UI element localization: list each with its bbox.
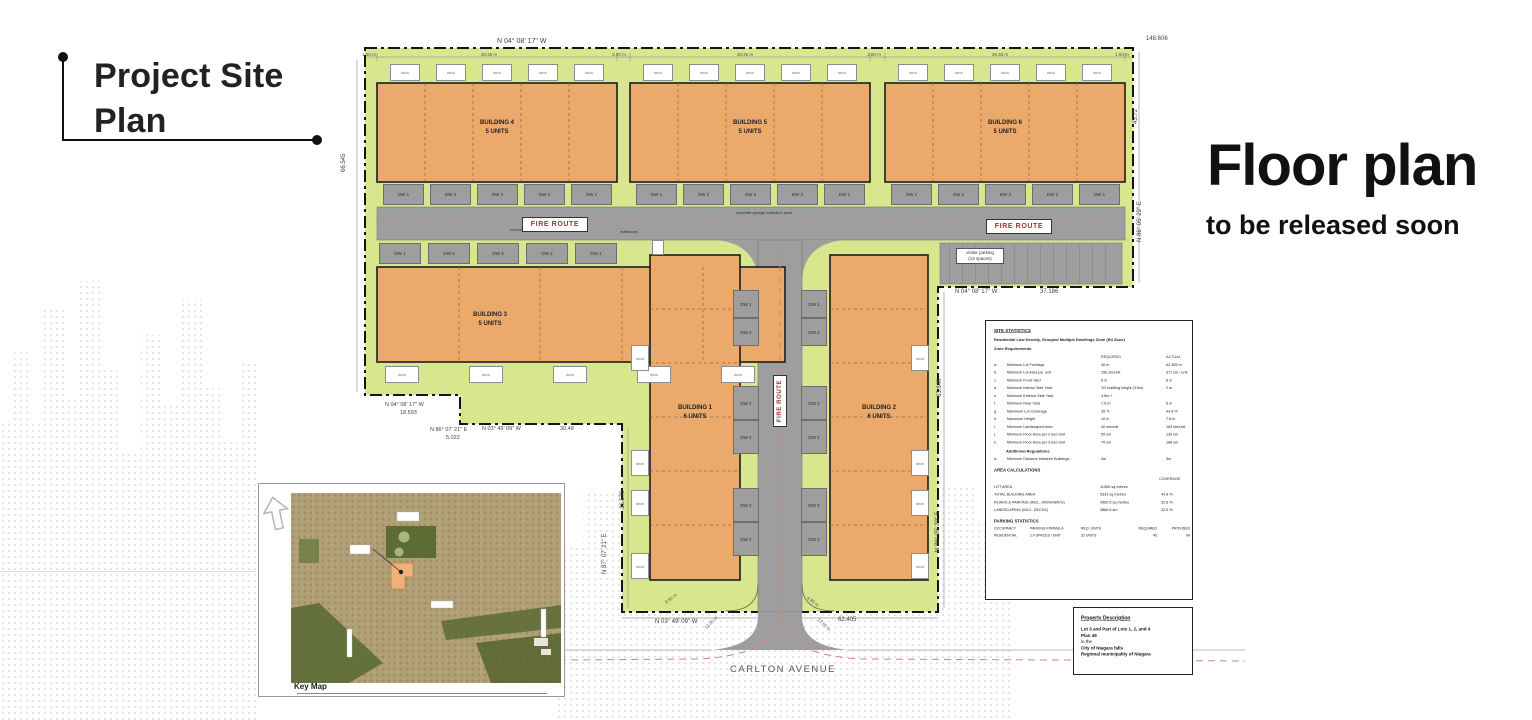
- building-6-footprint: [885, 83, 1125, 182]
- stats-row-actual: 2 m: [1166, 386, 1203, 391]
- stats-row-letter: a.: [994, 457, 1006, 462]
- stats-row-required: 4.5m +: [1101, 393, 1165, 398]
- site-marker-dot: [399, 570, 403, 574]
- parking-col: PROVIDED: [1158, 527, 1190, 531]
- stats-row: j. Minimum Floor Area per 2 bed Unit 55 …: [994, 432, 1186, 437]
- area-row-coverage: 32.8 %: [1161, 500, 1202, 505]
- site-plan-page: Project Site Plan Floor plan to be relea…: [0, 0, 1532, 720]
- parking-data-row: RESIDENTIAL 1.4 SPACES / UNIT 32 UNITS 4…: [994, 534, 1186, 538]
- stats-row-required: 250 sm/unit: [1101, 370, 1165, 375]
- stats-row-actual: 62.405 m: [1166, 362, 1203, 367]
- property-description-panel: Property Description Lot 3 and Part of L…: [1073, 607, 1193, 675]
- stats-area-row: TOTAL BUILDING AREA 5333 sq metres 44.8 …: [994, 492, 1186, 497]
- stats-row: i. Minimum Landscaped Area 40 sm/unit 16…: [994, 424, 1186, 429]
- property-title: Property Description: [1081, 615, 1187, 622]
- stats-area-row: LOT AREA 11900 sq metres: [994, 484, 1186, 489]
- stats-col-actual: ACTUAL: [1166, 355, 1203, 360]
- stats-row: h. Maximum Height 10 m 7.8 m: [994, 417, 1186, 422]
- stats-area-row: LANDSCAPING (INCL. DECKS) 3866.5 sm 32.5…: [994, 508, 1186, 513]
- stats-row-actual: 6 m: [1166, 401, 1203, 406]
- stats-row-description: Maximum Lot Coverage: [1007, 409, 1100, 414]
- stats-row-required: 10 m: [1101, 417, 1165, 422]
- stats-row-required: 6 m: [1101, 378, 1165, 383]
- parking-cell: 1.4 SPACES / UNIT: [1030, 534, 1080, 538]
- area-row-value: 5333 sq metres: [1100, 492, 1160, 497]
- stats-row-actual: 139 sm: [1166, 432, 1203, 437]
- parking-cell: 64: [1158, 534, 1190, 538]
- stats-row-description: Minimum Lot Area per unit: [1007, 370, 1100, 375]
- green-patch-left: [299, 539, 319, 563]
- stats-row: g. Maximum Lot Coverage 35 % 44.8 %: [994, 409, 1186, 414]
- stats-row-description: Minimum Floor Area per 2 bed Unit: [1007, 432, 1100, 437]
- stats-row: k. Minimum Floor Area per 3 bed Unit 75 …: [994, 440, 1186, 445]
- stats-row-description: Minimum Front Yard: [1007, 378, 1100, 383]
- stats-row-letter: i.: [994, 424, 1006, 429]
- stats-zone: Residential Low Density, Grouped Multipl…: [994, 338, 1186, 343]
- stats-row: a. Minimum Lot Frontage 30 m 62.405 m: [994, 362, 1186, 367]
- parking-cell: 45: [1117, 534, 1157, 538]
- stats-parking-title: PARKING STATISTICS: [994, 519, 1186, 524]
- building-1-footprint: [650, 255, 740, 580]
- area-row-value: 3866.5 sm: [1100, 508, 1160, 513]
- stats-row-required: 55 sm: [1101, 432, 1165, 437]
- property-description-content: Property Description Lot 3 and Part of L…: [1074, 608, 1194, 676]
- stats-row: e. Minimum Exterior Side Yard 4.5m +: [994, 393, 1186, 398]
- stats-section-additional: Additional Regulations: [1006, 449, 1186, 454]
- stats-row-description: Minimum Floor Area per 3 bed Unit: [1007, 440, 1100, 445]
- stats-row-actual: [1166, 393, 1203, 398]
- stats-row-actual: 7.8 m: [1166, 417, 1203, 422]
- stats-row-letter: f.: [994, 401, 1006, 406]
- area-row-description: LANDSCAPING (INCL. DECKS): [994, 508, 1099, 513]
- area-row-coverage: 44.8 %: [1161, 492, 1202, 497]
- parking-cell: RESIDENTIAL: [994, 534, 1029, 538]
- stats-row-letter: j.: [994, 432, 1006, 437]
- stats-row-actual: 371 sm / unit: [1166, 370, 1203, 375]
- stats-row-actual: 6 m: [1166, 378, 1203, 383]
- stats-row-description: Maximum Height: [1007, 417, 1100, 422]
- stats-row-letter: c.: [994, 378, 1006, 383]
- stats-row-letter: k.: [994, 440, 1006, 445]
- key-map-underline: [297, 693, 547, 694]
- stats-row-description: Minimum Interior Side Yard: [1007, 386, 1100, 391]
- parking-col: OCCUPANCY: [994, 527, 1029, 531]
- stats-coverage-header: COVERAGE: [994, 477, 1186, 482]
- stats-section-zone-requirements: Zone Requirements: [994, 347, 1186, 352]
- parking-col: REQ. UNITS: [1081, 527, 1116, 531]
- area-row-value: 11900 sq metres: [1100, 484, 1160, 489]
- stats-row-actual: 44.8 %: [1166, 409, 1203, 414]
- key-map-label: Key Map: [294, 682, 327, 691]
- stats-row-letter: d.: [994, 386, 1006, 391]
- visitor-parking-stalls: [944, 243, 1118, 284]
- stats-row-description: Minimum Landscaped Area: [1007, 424, 1100, 429]
- building-4-footprint: [377, 83, 617, 182]
- stats-title: SITE STATISTICS: [994, 328, 1186, 333]
- stats-row-actual: 163 sm/unit: [1166, 424, 1203, 429]
- stats-row-description: Minimum Exterior Side Yard: [1007, 393, 1100, 398]
- site-statistics-panel: SITE STATISTICS Residential Low Density,…: [985, 320, 1193, 600]
- stats-row-required: 1/2 building height (3.5m): [1101, 386, 1165, 391]
- area-row-coverage: [1161, 484, 1202, 489]
- stats-row-description: Minimum Distance between Buildings: [1007, 457, 1100, 462]
- stats-area-row: ROADS & PARKING (INCL. DRIVEWAYS) 3900.5…: [994, 500, 1186, 505]
- area-row-coverage: 32.5 %: [1161, 508, 1202, 513]
- area-row-value: 3900.5 sq metres: [1100, 500, 1160, 505]
- stats-row-description: Minimum Lot Frontage: [1007, 362, 1100, 367]
- stats-row-letter: e.: [994, 393, 1006, 398]
- north-arrow-icon: [262, 495, 290, 533]
- area-row-description: ROADS & PARKING (INCL. DRIVEWAYS): [994, 500, 1099, 505]
- building-5-footprint: [630, 83, 870, 182]
- stats-row: c. Minimum Front Yard 6 m 6 m: [994, 378, 1186, 383]
- stats-row: b. Minimum Lot Area per unit 250 sm/unit…: [994, 370, 1186, 375]
- stats-row: f. Minimum Rear Yard 7.5 m 6 m: [994, 401, 1186, 406]
- building-2-footprint: [830, 255, 928, 580]
- stats-area-title: AREA CALCULATIONS: [994, 468, 1186, 473]
- parking-header-row: OCCUPANCY PARKING FORMULA REQ. UNITS REQ…: [994, 527, 1186, 531]
- park-green: [386, 526, 436, 558]
- stats-row-required: 75 sm: [1101, 440, 1165, 445]
- parking-col: REQUIRED: [1117, 527, 1157, 531]
- stats-row: a. Minimum Distance between Buildings 3m…: [994, 457, 1186, 462]
- area-row-description: TOTAL BUILDING AREA: [994, 492, 1099, 497]
- key-map-panel: Key Map: [258, 483, 565, 697]
- stats-row-actual: 188 sm: [1166, 440, 1203, 445]
- stats-col-required: REQUIRED: [1101, 355, 1165, 360]
- parking-col: PARKING FORMULA: [1030, 527, 1080, 531]
- parking-cell: 32 UNITS: [1081, 534, 1116, 538]
- stats-row-required: 30 m: [1101, 362, 1165, 367]
- stats-row-required: 3m: [1101, 457, 1165, 462]
- key-map-aerial-photo: [291, 493, 561, 683]
- stats-row-required: 35 %: [1101, 409, 1165, 414]
- stats-row-required: 40 sm/unit: [1101, 424, 1165, 429]
- site-statistics-content: SITE STATISTICS Residential Low Density,…: [986, 321, 1194, 601]
- site-plan-drawing: [0, 0, 1532, 720]
- stats-row-letter: g.: [994, 409, 1006, 414]
- stats-row: d. Minimum Interior Side Yard 1/2 buildi…: [994, 386, 1186, 391]
- stats-column-headers: REQUIRED ACTUAL: [994, 355, 1186, 360]
- property-line: Regional municipality of Niagara: [1081, 651, 1187, 657]
- stats-col-coverage: COVERAGE: [1159, 477, 1200, 482]
- area-row-description: LOT AREA: [994, 484, 1099, 489]
- stats-row-letter: h.: [994, 417, 1006, 422]
- stats-row-actual: 3m: [1166, 457, 1203, 462]
- stats-row-letter: b.: [994, 370, 1006, 375]
- stats-row-letter: a.: [994, 362, 1006, 367]
- stats-row-description: Minimum Rear Yard: [1007, 401, 1100, 406]
- stats-row-required: 7.5 m: [1101, 401, 1165, 406]
